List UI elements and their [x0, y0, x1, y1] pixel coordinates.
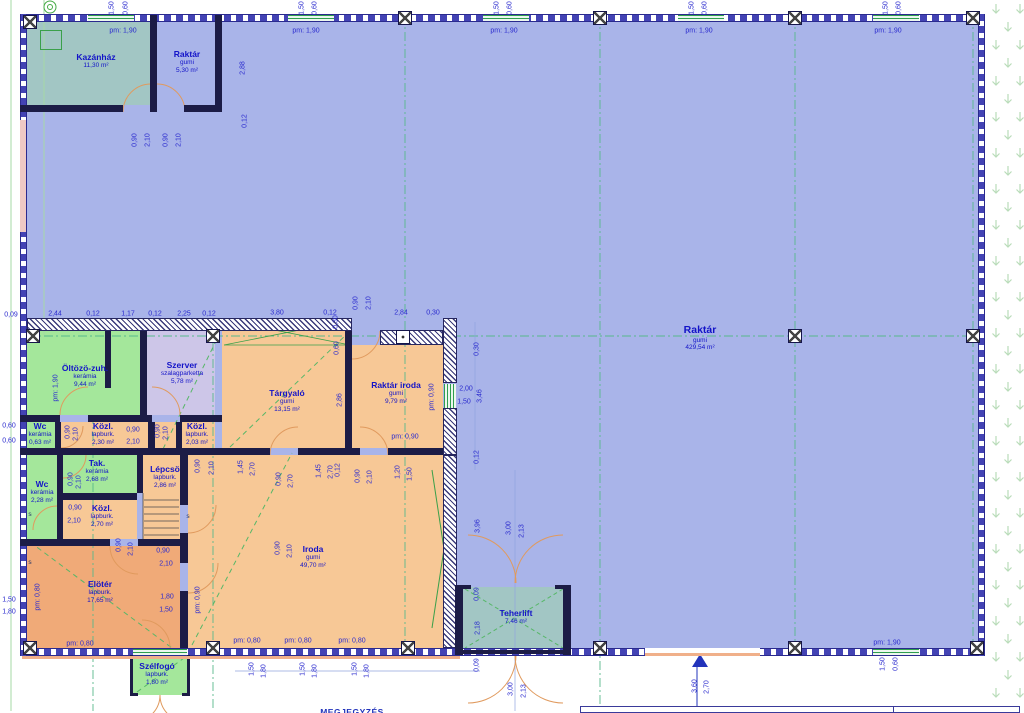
wall-segment — [40, 30, 62, 50]
dimension-label: 0,90 — [126, 427, 140, 434]
column-marker — [593, 11, 607, 25]
wall-segment — [63, 493, 137, 500]
dimension-label: 1,80 — [160, 594, 174, 601]
wall-segment — [138, 539, 180, 546]
wall-segment — [137, 455, 143, 493]
room-label: Teherlift 7,46 m² — [500, 608, 533, 626]
dimension-label: pm: 0,80 — [284, 638, 311, 645]
room-area: 9,79 m² — [371, 398, 421, 406]
room-area: 2,68 m² — [85, 476, 108, 484]
room-label: Közl. lapburk. 2,03 m² — [185, 421, 208, 447]
wall-segment — [483, 15, 529, 21]
room-name: Iroda — [300, 544, 326, 554]
room-area: 2,28 m² — [30, 497, 53, 505]
wall-segment — [893, 706, 894, 713]
dimension-label: 0,12 — [242, 114, 249, 128]
wall-segment — [176, 422, 182, 448]
dimension-label: 3,00 — [506, 521, 513, 535]
dimension-label: 2,88 — [240, 61, 247, 75]
dimension-label: 1,80 — [312, 664, 319, 678]
dimension-label: 0,60 — [507, 1, 514, 15]
room-material: kerámia — [62, 373, 108, 381]
dimension-label: 3,60 — [692, 679, 699, 693]
dimension-label: 0,90 — [275, 541, 282, 555]
dimension-label: 2,44 — [48, 311, 62, 318]
column-marker — [206, 641, 220, 655]
room-material: kerámia — [30, 489, 53, 497]
site-arrows-pattern — [990, 0, 1024, 713]
room-label: Iroda gumi 49,70 m² — [300, 544, 326, 570]
dimension-label: 0,30 — [426, 310, 440, 317]
room-material: kerámia — [28, 431, 51, 439]
wall-segment — [443, 408, 457, 455]
dimension-label: 3,00 — [508, 682, 515, 696]
dimension-label: 2,10 — [163, 426, 170, 440]
dimension-label: 3,46 — [477, 389, 484, 403]
room: Elötér lapburk. 17,65 m² — [27, 546, 180, 648]
dimension-label: 1,50 — [494, 1, 501, 15]
dimension-label: 3,80 — [270, 310, 284, 317]
room-material: gumi — [371, 390, 421, 398]
room-name: Közl. — [90, 503, 113, 513]
wall-segment — [150, 105, 157, 112]
dimension-label: pm: 1,90 — [874, 28, 901, 35]
wall-segment — [444, 384, 456, 408]
room-material: lapburk. — [87, 589, 113, 597]
room-label: Raktár iroda gumi 9,79 m² — [371, 380, 421, 406]
room-name: Tak. — [85, 458, 108, 468]
wall-segment — [455, 585, 463, 655]
room-area: 13,15 m² — [269, 406, 304, 414]
dimension-label: 2,84 — [394, 310, 408, 317]
dimension-label: 0,12 — [474, 450, 481, 464]
dimension-label: 2,10 — [367, 470, 374, 484]
room-material: lapburk. — [139, 671, 174, 679]
room: Lépcsö lapburk. 2,86 m² — [143, 455, 180, 539]
room-material: kerámia — [85, 468, 108, 476]
dimension-label: 2,86 — [337, 393, 344, 407]
room: Wc kerámia 0,63 m² — [27, 422, 55, 448]
dimension-label: s — [186, 514, 189, 521]
dimension-label: 1,80 — [364, 664, 371, 678]
room-name: Raktár — [174, 49, 200, 59]
dimension-label: 2,10 — [145, 133, 152, 147]
dimension-label: 1,50 — [689, 1, 696, 15]
room-label: Közl. lapburk. 2,30 m² — [91, 421, 114, 447]
room-area: 11,30 m² — [76, 62, 115, 70]
room-area: 5,78 m² — [161, 378, 203, 386]
dimension-label: 2,18 — [475, 621, 482, 635]
dimension-label: 0,60 — [123, 1, 130, 15]
dimension-label: 2,70 — [704, 680, 711, 694]
dimension-label: 0,90 — [132, 133, 139, 147]
dimension-label: pm: 0,90 — [429, 383, 436, 410]
dimension-label: 2,10 — [67, 518, 81, 525]
room: Öltözö-zuh. kerámia 9,44 m² — [27, 331, 140, 415]
dimension-label: 0,09 — [474, 587, 481, 601]
floor-plan-canvas: Raktár gumi 429,54 m² Kazánház 11,30 m² … — [0, 0, 1024, 713]
dimension-label: 1,50 — [457, 399, 471, 406]
room-label: Raktár gumi 429,54 m² — [684, 324, 717, 352]
column-marker — [966, 329, 980, 343]
dimension-label: 0,60 — [2, 423, 16, 430]
wall-segment — [140, 331, 147, 415]
dimension-label: 2,10 — [366, 296, 373, 310]
room: Wc kerámia 2,28 m² — [27, 455, 57, 539]
room-area: 9,44 m² — [62, 381, 108, 389]
wall-segment — [22, 656, 460, 659]
dimension-label: pm: 1,90 — [292, 28, 319, 35]
room-area: 49,70 m² — [300, 562, 326, 570]
wall-segment — [20, 120, 26, 232]
room: Tárgyaló gumi 13,15 m² — [222, 331, 345, 448]
room-area: 7,46 m² — [500, 618, 533, 626]
dimension-label: 0,90 — [353, 296, 360, 310]
wall-segment — [180, 533, 188, 563]
wall-segment — [298, 448, 360, 455]
room-name: Raktár — [684, 324, 717, 337]
dimension-label: 1,20 — [395, 465, 402, 479]
room-area: 2,30 m² — [91, 439, 114, 447]
room-material: gumi — [684, 337, 717, 345]
wall-segment — [130, 693, 138, 696]
site-arrows-fill — [990, 0, 1024, 713]
room-material: gumi — [300, 554, 326, 562]
dimension-label: pm: 0,80 — [338, 638, 365, 645]
column-marker — [26, 329, 40, 343]
wall-segment — [580, 706, 1020, 713]
dimension-label: 0,09 — [474, 658, 481, 672]
room-area: 1,80 m² — [139, 679, 174, 687]
column-marker — [593, 641, 607, 655]
wall-segment — [215, 15, 222, 112]
dimension-label: 2,70 — [328, 465, 335, 479]
room-name: Kazánház — [76, 52, 115, 62]
room-material: gumi — [174, 59, 200, 67]
dimension-label: 2,70 — [288, 474, 295, 488]
room: Raktár gumi 5,30 m² — [157, 22, 215, 105]
room-material: gumi — [269, 398, 304, 406]
dimension-label: 1,80 — [2, 609, 16, 616]
wall-segment — [345, 331, 352, 448]
dimension-label: 1,50 — [352, 662, 359, 676]
room-label: Kazánház 11,30 m² — [76, 52, 115, 70]
dimension-label: 0,60 — [334, 341, 341, 355]
dimension-label: 2,70 — [250, 462, 257, 476]
dimension-label: 0,12 — [202, 311, 216, 318]
dimension-label: 0,12 — [148, 311, 162, 318]
room-name: Raktár iroda — [371, 380, 421, 390]
room-name: Közl. — [91, 421, 114, 431]
dimension-label: MEGJEGYZÉS — [320, 708, 384, 713]
dimension-label: pm: 0,80 — [35, 583, 42, 610]
room-name: Tárgyaló — [269, 388, 304, 398]
dimension-label: 0,90 — [355, 469, 362, 483]
dimension-label: 2,10 — [73, 427, 80, 441]
dimension-label: pm: 0,90 — [195, 586, 202, 613]
wall-segment — [180, 591, 188, 648]
dimension-label: 0,90 — [116, 538, 123, 552]
room-label: Lépcsö lapburk. 2,86 m² — [150, 464, 180, 490]
column-marker — [23, 15, 37, 29]
dimension-label: 1,80 — [261, 664, 268, 678]
room-material: lapburk. — [90, 513, 113, 521]
dimension-label: 1,45 — [316, 464, 323, 478]
dimension-label: 0,90 — [276, 472, 283, 486]
dimension-label: 2,00 — [459, 386, 473, 393]
dimension-label: 0,12 — [335, 463, 342, 477]
dimension-label: 2,13 — [519, 524, 526, 538]
dimension-label: 2,10 — [159, 561, 173, 568]
dimension-label: pm: 0,80 — [233, 638, 260, 645]
room-label: Elötér lapburk. 17,65 m² — [87, 579, 113, 605]
dimension-label: pm: 1,90 — [109, 28, 136, 35]
dimension-label: 1,50 — [300, 662, 307, 676]
room-label: Öltözö-zuh. kerámia 9,44 m² — [62, 363, 108, 389]
dimension-label: s — [28, 560, 31, 567]
wall-segment — [463, 650, 567, 654]
room-name: Elötér — [87, 579, 113, 589]
column-marker — [398, 11, 412, 25]
dimension-label: 2,25 — [177, 311, 191, 318]
wall-segment — [187, 655, 190, 696]
room-name: Szerver — [161, 360, 203, 370]
wall-segment — [463, 585, 471, 589]
dimension-label: 0,90 — [155, 424, 162, 438]
room-name: Öltözö-zuh. — [62, 363, 108, 373]
column-marker — [788, 11, 802, 25]
dimension-label: 0,90 — [68, 505, 82, 512]
room-label: Tárgyaló gumi 13,15 m² — [269, 388, 304, 414]
room-label: Wc kerámia 0,63 m² — [28, 421, 51, 447]
room: Iroda gumi 49,70 m² — [188, 455, 443, 648]
wall-segment — [88, 15, 134, 21]
room-name: Szélfogó — [139, 661, 174, 671]
dimension-label: 1,50 — [883, 1, 890, 15]
room-area: 5,30 m² — [174, 67, 200, 75]
dimension-label: 0,60 — [2, 438, 16, 445]
wall-segment — [380, 330, 443, 345]
dimension-label: 1,50 — [2, 597, 16, 604]
dimension-label: 0,90 — [156, 548, 170, 555]
dimension-label: 2,10 — [76, 475, 83, 489]
wall-segment — [133, 649, 187, 655]
dimension-label: 0,09 — [4, 312, 18, 319]
room-label: Szerver szalagparketta 5,78 m² — [161, 360, 203, 386]
wall-segment — [20, 105, 123, 112]
dimension-label: pm: 0,90 — [391, 434, 418, 441]
room-material: szalagparketta — [161, 370, 203, 378]
wall-segment — [563, 585, 571, 655]
dimension-label: 1,45 — [238, 460, 245, 474]
dimension-label: 1,50 — [880, 657, 887, 671]
room-name: Wc — [28, 421, 51, 431]
wall-segment — [443, 318, 457, 383]
column-marker — [966, 11, 980, 25]
room-label: Raktár gumi 5,30 m² — [174, 49, 200, 75]
room-area: 17,65 m² — [87, 597, 113, 605]
dimension-label: 2,10 — [128, 542, 135, 556]
dimension-label: 1,50 — [249, 662, 256, 676]
room-area: 2,70 m² — [90, 521, 113, 529]
room-label: Szélfogó lapburk. 1,80 m² — [139, 661, 174, 687]
column-marker — [970, 641, 984, 655]
wall-segment — [150, 15, 157, 105]
column-marker — [788, 329, 802, 343]
wall-segment — [20, 539, 110, 546]
dimension-label: 2,10 — [126, 439, 140, 446]
room-material: lapburk. — [185, 431, 208, 439]
wall-segment — [180, 455, 188, 505]
room-material: lapburk. — [150, 474, 180, 482]
room: Szélfogó lapburk. 1,80 m² — [133, 655, 187, 695]
dimension-label: 0,90 — [68, 472, 75, 486]
room-label: Wc kerámia 2,28 m² — [30, 479, 53, 505]
dimension-label: 0,12 — [86, 311, 100, 318]
wall-segment — [182, 693, 190, 696]
dimension-label: 1,17 — [121, 311, 135, 318]
dimension-label: 0,60 — [893, 657, 900, 671]
wall-segment — [873, 649, 919, 655]
wall-segment — [55, 422, 61, 448]
wall-segment — [678, 15, 724, 21]
dimension-label: 0,90 — [65, 425, 72, 439]
dimension-label: 1,50 — [407, 467, 414, 481]
dimension-label: pm: 0,80 — [66, 641, 93, 648]
dimension-label: 0,60 — [312, 1, 319, 15]
wall-segment — [27, 318, 352, 331]
column-marker — [396, 330, 410, 344]
dimension-label: 0,90 — [163, 133, 170, 147]
wall-segment — [288, 15, 334, 21]
room-label: Tak. kerámia 2,68 m² — [85, 458, 108, 484]
dimension-label: 3,96 — [475, 519, 482, 533]
room-area: 429,54 m² — [684, 344, 717, 352]
dimension-label: 1,50 — [299, 1, 306, 15]
dimension-label: pm: 1,90 — [490, 28, 517, 35]
room-name: Közl. — [185, 421, 208, 431]
dimension-label: 0,60 — [702, 1, 709, 15]
dimension-label: 2,13 — [521, 684, 528, 698]
room-name: Lépcsö — [150, 464, 180, 474]
dimension-label: 0,30 — [474, 342, 481, 356]
column-marker — [401, 641, 415, 655]
column-marker — [23, 641, 37, 655]
dimension-label: s — [28, 512, 31, 519]
dimension-label: 0,90 — [195, 459, 202, 473]
dimension-label: pm: 1,90 — [873, 640, 900, 647]
room-area: 2,03 m² — [185, 439, 208, 447]
room-material: lapburk. — [91, 431, 114, 439]
room-area: 0,63 m² — [28, 439, 51, 447]
room-name: Wc — [30, 479, 53, 489]
wall-segment — [20, 448, 270, 455]
wall-segment — [873, 15, 919, 21]
dimension-label: 2,10 — [209, 461, 216, 475]
room-label: Közl. lapburk. 2,70 m² — [90, 503, 113, 529]
dimension-label: 2,10 — [176, 133, 183, 147]
wall-segment — [645, 653, 760, 656]
dimension-label: 1,50 — [109, 1, 116, 15]
column-marker — [788, 641, 802, 655]
dimension-label: 0,30 — [333, 315, 340, 329]
wall-segment — [130, 655, 133, 696]
dimension-label: 0,60 — [896, 1, 903, 15]
room-name: Teherlift — [500, 608, 533, 618]
room: Szerver szalagparketta 5,78 m² — [147, 331, 215, 415]
dimension-label: pm: 1,90 — [53, 374, 60, 401]
room-area: 2,86 m² — [150, 482, 180, 490]
dimension-label: 1,50 — [159, 607, 173, 614]
dimension-label: 2,10 — [287, 544, 294, 558]
column-marker — [206, 329, 220, 343]
dimension-label: pm: 1,90 — [685, 28, 712, 35]
